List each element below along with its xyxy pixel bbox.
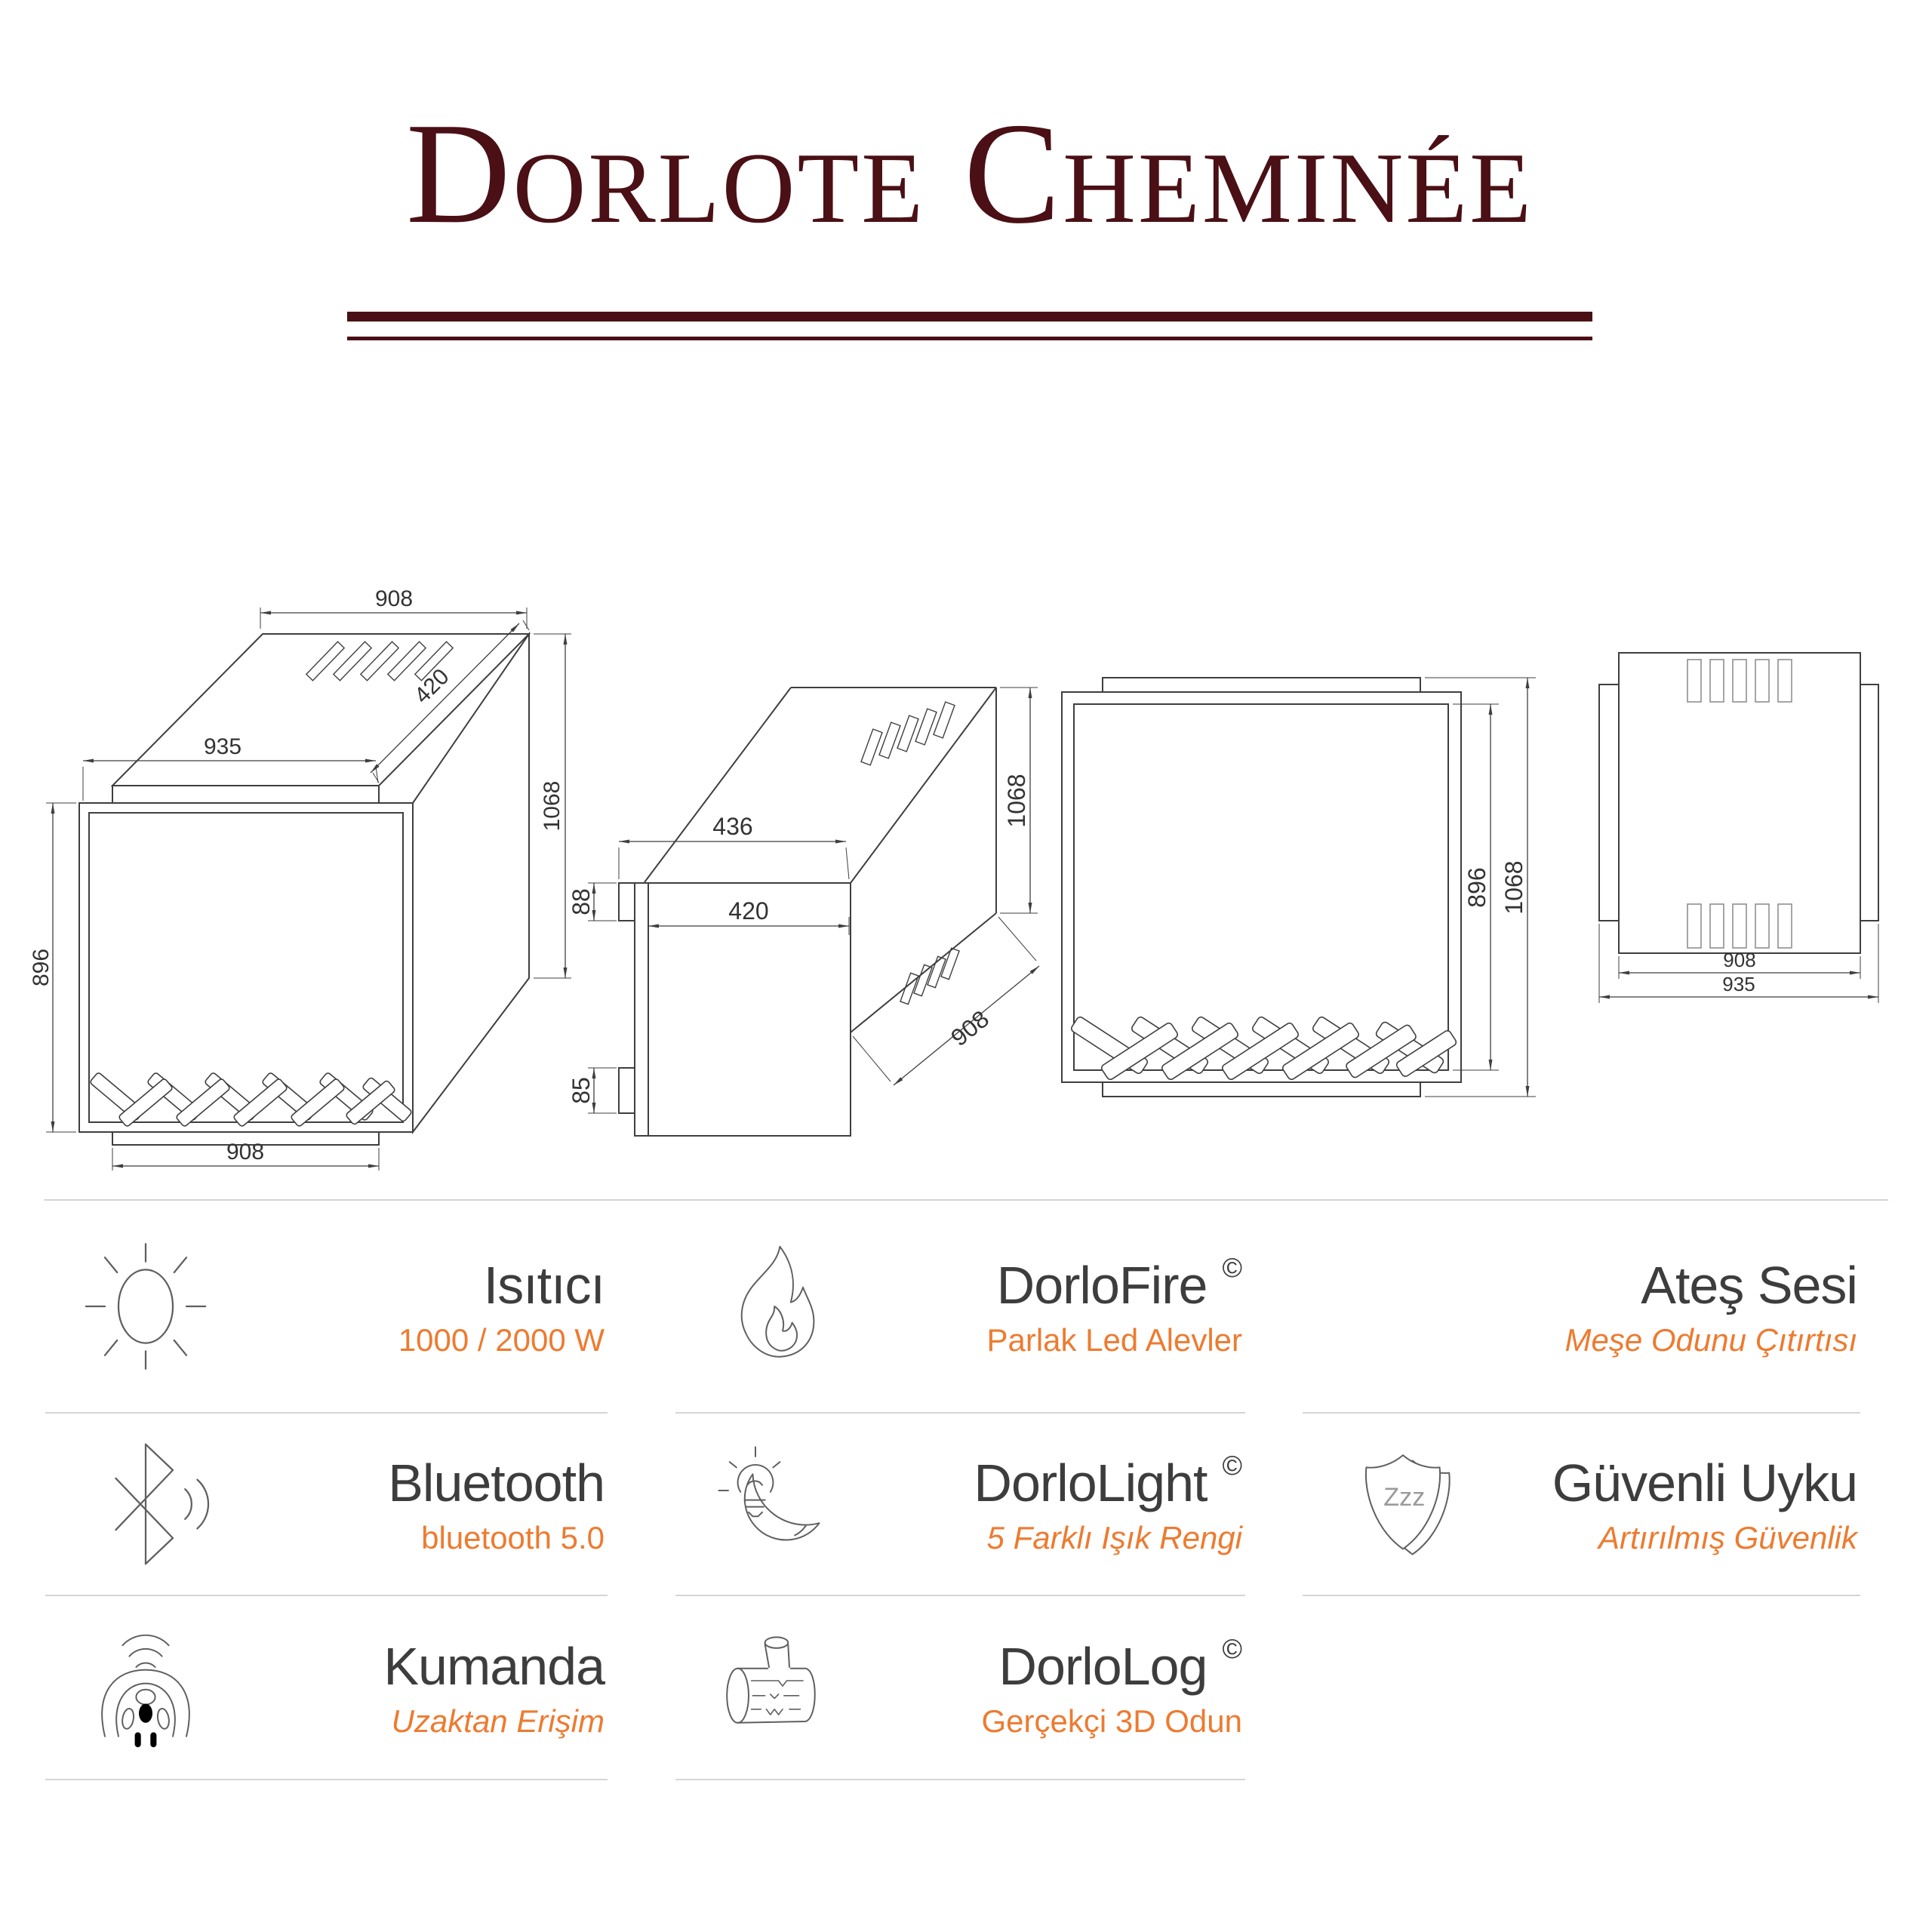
feature-title: DorloLog © [998, 1636, 1242, 1697]
feature-subtitle: 1000 / 2000 W [398, 1322, 605, 1358]
feature-title: Isıtıcı [484, 1255, 605, 1315]
feature-title: DorloFire © [997, 1255, 1242, 1315]
feature-title: DorloLight © [974, 1453, 1242, 1513]
feature-bluetooth: Bluetooth bluetooth 5.0 [45, 1414, 608, 1596]
dim-iso-plate-width: 935 [204, 734, 241, 759]
dim-side-top-offset: 88 [568, 888, 595, 915]
feature-subtitle: Meşe Odunu Çıtırtısı [1565, 1322, 1857, 1358]
remote-icon [45, 1620, 245, 1755]
firewood-logs [90, 1072, 413, 1127]
feature-subtitle: Gerçekçi 3D Odun [982, 1703, 1242, 1740]
dim-iso-front-height: 896 [29, 949, 54, 986]
sun-icon [45, 1238, 245, 1374]
feature-dorlofire: DorloFire © Parlak Led Alevler [675, 1201, 1245, 1414]
bluetooth-icon [45, 1436, 245, 1572]
feature-title: Ateş Sesi [1641, 1255, 1857, 1315]
feature-subtitle: Artırılmış Güvenlik [1598, 1520, 1857, 1556]
feature-title: Kumanda [383, 1636, 605, 1697]
feature-subtitle: bluetooth 5.0 [421, 1520, 605, 1556]
shield-zzz-text: Zzz [1383, 1483, 1425, 1512]
feature-safe-sleep: Zzz Güvenli Uyku Artırılmış Güvenlik [1303, 1414, 1860, 1596]
vent-slots-top [1687, 660, 1792, 948]
product-spec-sheet: Dorlote Cheminée [0, 0, 1932, 1932]
title-underline-thick [347, 312, 1592, 321]
title-text: DorloLog [998, 1636, 1207, 1697]
feature-dorlolog: DorloLog © Gerçekçi 3D Odun [675, 1596, 1245, 1780]
top-view-drawing: 908 935 [1574, 638, 1913, 1015]
title-text: DorloLight [974, 1453, 1207, 1513]
feature-heater: Isıtıcı 1000 / 2000 W [45, 1201, 608, 1414]
dim-iso-top-width: 908 [375, 586, 413, 611]
rear-vent-slats [861, 702, 959, 1004]
dim-iso-depth: 420 [410, 664, 454, 709]
dim-top-width: 935 [1722, 973, 1755, 995]
feature-title: Güvenli Uyku [1552, 1453, 1857, 1513]
dim-iso-side-height: 1068 [540, 781, 565, 832]
dim-side-door-depth: 420 [728, 897, 768, 924]
dim-iso-bottom-width: 908 [226, 1140, 264, 1164]
dim-side-height: 1068 [1003, 774, 1030, 827]
shield-icon: Zzz [1303, 1436, 1503, 1572]
copyright-mark: © [1222, 1252, 1242, 1284]
feature-remote: Kumanda Uzaktan Erişim [45, 1596, 608, 1780]
dim-side-width: 908 [946, 1005, 994, 1052]
front-view-drawing: 896 1068 [1049, 634, 1577, 1132]
dim-top-inner-width: 908 [1723, 949, 1755, 971]
dim-side-bottom-offset: 85 [568, 1077, 595, 1104]
brand-title: Dorlote Cheminée [343, 91, 1596, 257]
feature-subtitle: Parlak Led Alevler [986, 1322, 1242, 1358]
log-icon [675, 1620, 875, 1755]
feature-column-1: Isıtıcı 1000 / 2000 W Bluetooth b [45, 1201, 608, 1780]
feature-column-3: Ateş Sesi Meşe Odunu Çıtırtısı Zzz Güven… [1303, 1201, 1860, 1596]
side-view-drawing: 436 420 88 85 1068 908 [585, 615, 1060, 1174]
feature-column-2: DorloFire © Parlak Led Alevler [675, 1201, 1245, 1780]
copyright-mark: © [1222, 1450, 1242, 1481]
isometric-view-drawing: 908 420 935 1068 896 908 [42, 577, 600, 1181]
flame-icon [675, 1238, 875, 1374]
feature-dorlolight: DorloLight © 5 Farklı Işık Rengi [675, 1414, 1245, 1596]
feature-title: Bluetooth [388, 1453, 605, 1513]
title-text: DorloFire [997, 1255, 1207, 1315]
title-underline-thin [347, 337, 1592, 340]
copyright-mark: © [1222, 1633, 1242, 1665]
dim-side-top-depth: 436 [712, 813, 752, 840]
feature-fire-sound: Ateş Sesi Meşe Odunu Çıtırtısı [1303, 1201, 1860, 1414]
feature-subtitle: Uzaktan Erişim [392, 1703, 605, 1740]
feature-subtitle: 5 Farklı Işık Rengi [987, 1520, 1242, 1556]
bulb-moon-icon [675, 1436, 875, 1572]
dim-front-height: 1068 [1500, 860, 1527, 914]
dim-front-glass-height: 896 [1463, 867, 1491, 907]
firewood-logs-front [1070, 1016, 1457, 1081]
